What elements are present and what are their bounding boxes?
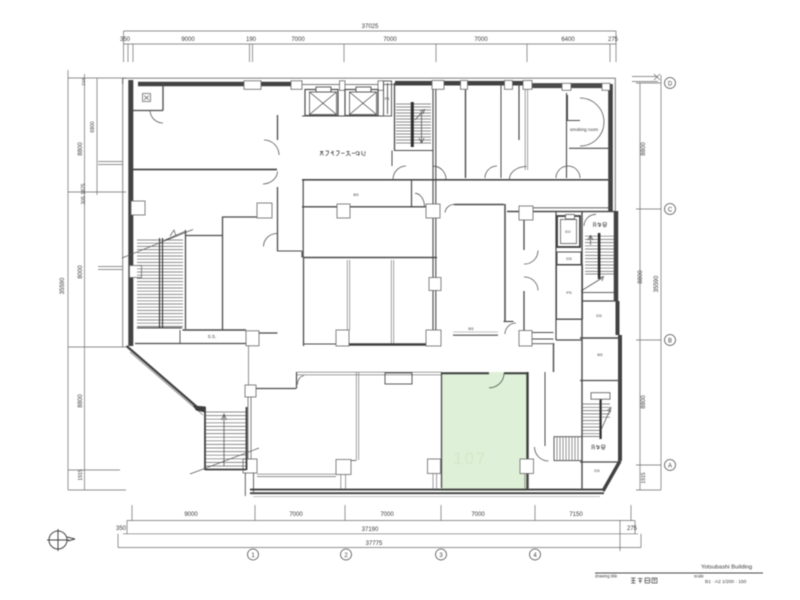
svg-text:8800: 8800 [78, 142, 84, 156]
svg-text:drawing title: drawing title [595, 574, 618, 579]
svg-text:DS: DS [596, 313, 602, 318]
svg-text:350: 350 [116, 526, 127, 532]
svg-text:C: C [668, 208, 673, 214]
svg-text:210: 210 [81, 78, 86, 86]
svg-text:6800: 6800 [90, 121, 96, 132]
svg-text:37025: 37025 [362, 24, 379, 30]
svg-text:BS: BS [597, 352, 603, 357]
svg-text:EV: EV [565, 229, 571, 234]
svg-text:S.S.: S.S. [208, 334, 217, 339]
svg-text:7000: 7000 [380, 512, 394, 518]
svg-text:scale: scale [694, 574, 704, 579]
svg-text:Yotsubashi Building: Yotsubashi Building [701, 565, 752, 571]
svg-text:smoking room: smoking room [570, 127, 599, 132]
svg-text:9000: 9000 [181, 37, 195, 43]
svg-text:275: 275 [608, 37, 619, 43]
svg-text:7000: 7000 [291, 37, 305, 43]
svg-text:275: 275 [627, 526, 638, 532]
svg-text:DS: DS [594, 468, 600, 473]
svg-text:7000: 7000 [289, 512, 303, 518]
svg-text:1915: 1915 [641, 472, 647, 483]
svg-text:35590: 35590 [654, 275, 660, 292]
svg-text:8800: 8800 [641, 142, 647, 156]
svg-text:1915: 1915 [78, 469, 84, 480]
svg-text:DS: DS [566, 256, 572, 261]
svg-text:37775: 37775 [366, 541, 383, 547]
svg-text:8800: 8800 [638, 270, 644, 284]
svg-text:7000: 7000 [471, 512, 485, 518]
svg-text:8800: 8800 [78, 394, 84, 408]
svg-text:35590: 35590 [60, 277, 66, 294]
svg-text:BS: BS [468, 326, 474, 331]
svg-text:8000: 8000 [78, 265, 84, 279]
svg-text:A: A [668, 464, 672, 470]
svg-text:107: 107 [453, 449, 487, 468]
svg-text:BS: BS [353, 192, 359, 197]
svg-text:350: 350 [120, 37, 131, 43]
svg-text:PS: PS [566, 290, 572, 295]
svg-text:37190: 37190 [362, 527, 379, 533]
svg-text:PS: PS [385, 97, 390, 101]
svg-text:8800: 8800 [641, 395, 647, 409]
svg-text:190: 190 [246, 37, 257, 43]
svg-text:6400: 6400 [561, 37, 575, 43]
svg-text:7000: 7000 [474, 37, 488, 43]
svg-text:305 1875: 305 1875 [81, 183, 87, 204]
svg-text:7000: 7000 [383, 37, 397, 43]
svg-text:B: B [668, 339, 672, 345]
svg-text:9000: 9000 [184, 512, 198, 518]
svg-text:7150: 7150 [569, 512, 583, 518]
svg-text:B1 · A2 1/200 · 150: B1 · A2 1/200 · 150 [705, 579, 747, 585]
svg-text:D: D [668, 82, 673, 88]
